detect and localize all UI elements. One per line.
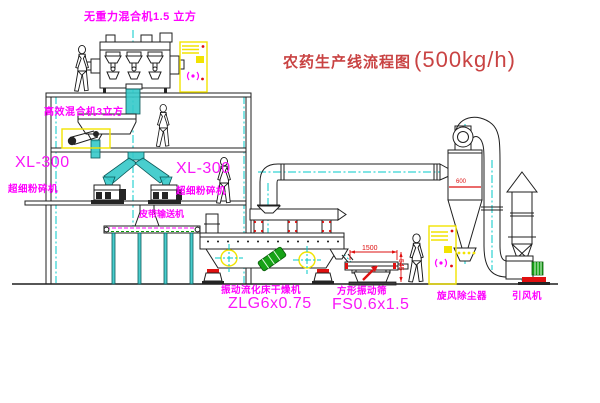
control-cabinet-right: [429, 226, 456, 284]
fluid-bed-dryer: [200, 209, 348, 284]
pulverizer-left: [91, 177, 126, 204]
person-figure: [409, 234, 423, 282]
belt-conveyor: [104, 226, 200, 284]
cyclone-separator: [448, 117, 507, 277]
label-mill-right-model: XL-300: [176, 161, 231, 177]
label-dryer-model: ZLG6x0.75: [228, 296, 312, 312]
exhaust-duct: [257, 164, 449, 213]
diagram-title: 农药生产线流程图 (500kg/h): [283, 47, 516, 73]
flow-diagram-canvas: 无重力混合机1.5 立方 农药生产线流程图 (500kg/h) 高效混合机3立方…: [0, 0, 600, 403]
label-screen-model: FS0.6x1.5: [332, 297, 409, 313]
exhaust-stack: [507, 172, 537, 258]
mixer-down-duct: [126, 89, 140, 114]
dimension-screen-height: 545: [397, 259, 404, 271]
dimension-screen-length: 1500: [362, 245, 378, 252]
diagram-title-text: 农药生产线流程图: [283, 51, 411, 72]
dimension-cyclone: 600: [456, 179, 466, 185]
induced-draft-fan: [506, 256, 550, 285]
diagram-title-capacity: (500kg/h): [414, 47, 516, 73]
label-floor2-mixer: 高效混合机3立方: [44, 108, 124, 118]
label-top-mixer: 无重力混合机1.5 立方: [84, 12, 196, 23]
label-mill-right-name: 超细粉碎机: [176, 187, 226, 197]
label-mill-left-name: 超细粉碎机: [8, 185, 58, 195]
label-cyclone: 旋风除尘器: [437, 292, 487, 302]
person-figure: [156, 104, 169, 146]
label-belt-conveyor: 皮带输送机: [139, 210, 184, 219]
gravity-free-mixer: [85, 33, 184, 93]
label-fan: 引风机: [512, 292, 542, 302]
person-figure: [75, 45, 89, 91]
label-mill-left-model: XL-300: [15, 155, 70, 171]
